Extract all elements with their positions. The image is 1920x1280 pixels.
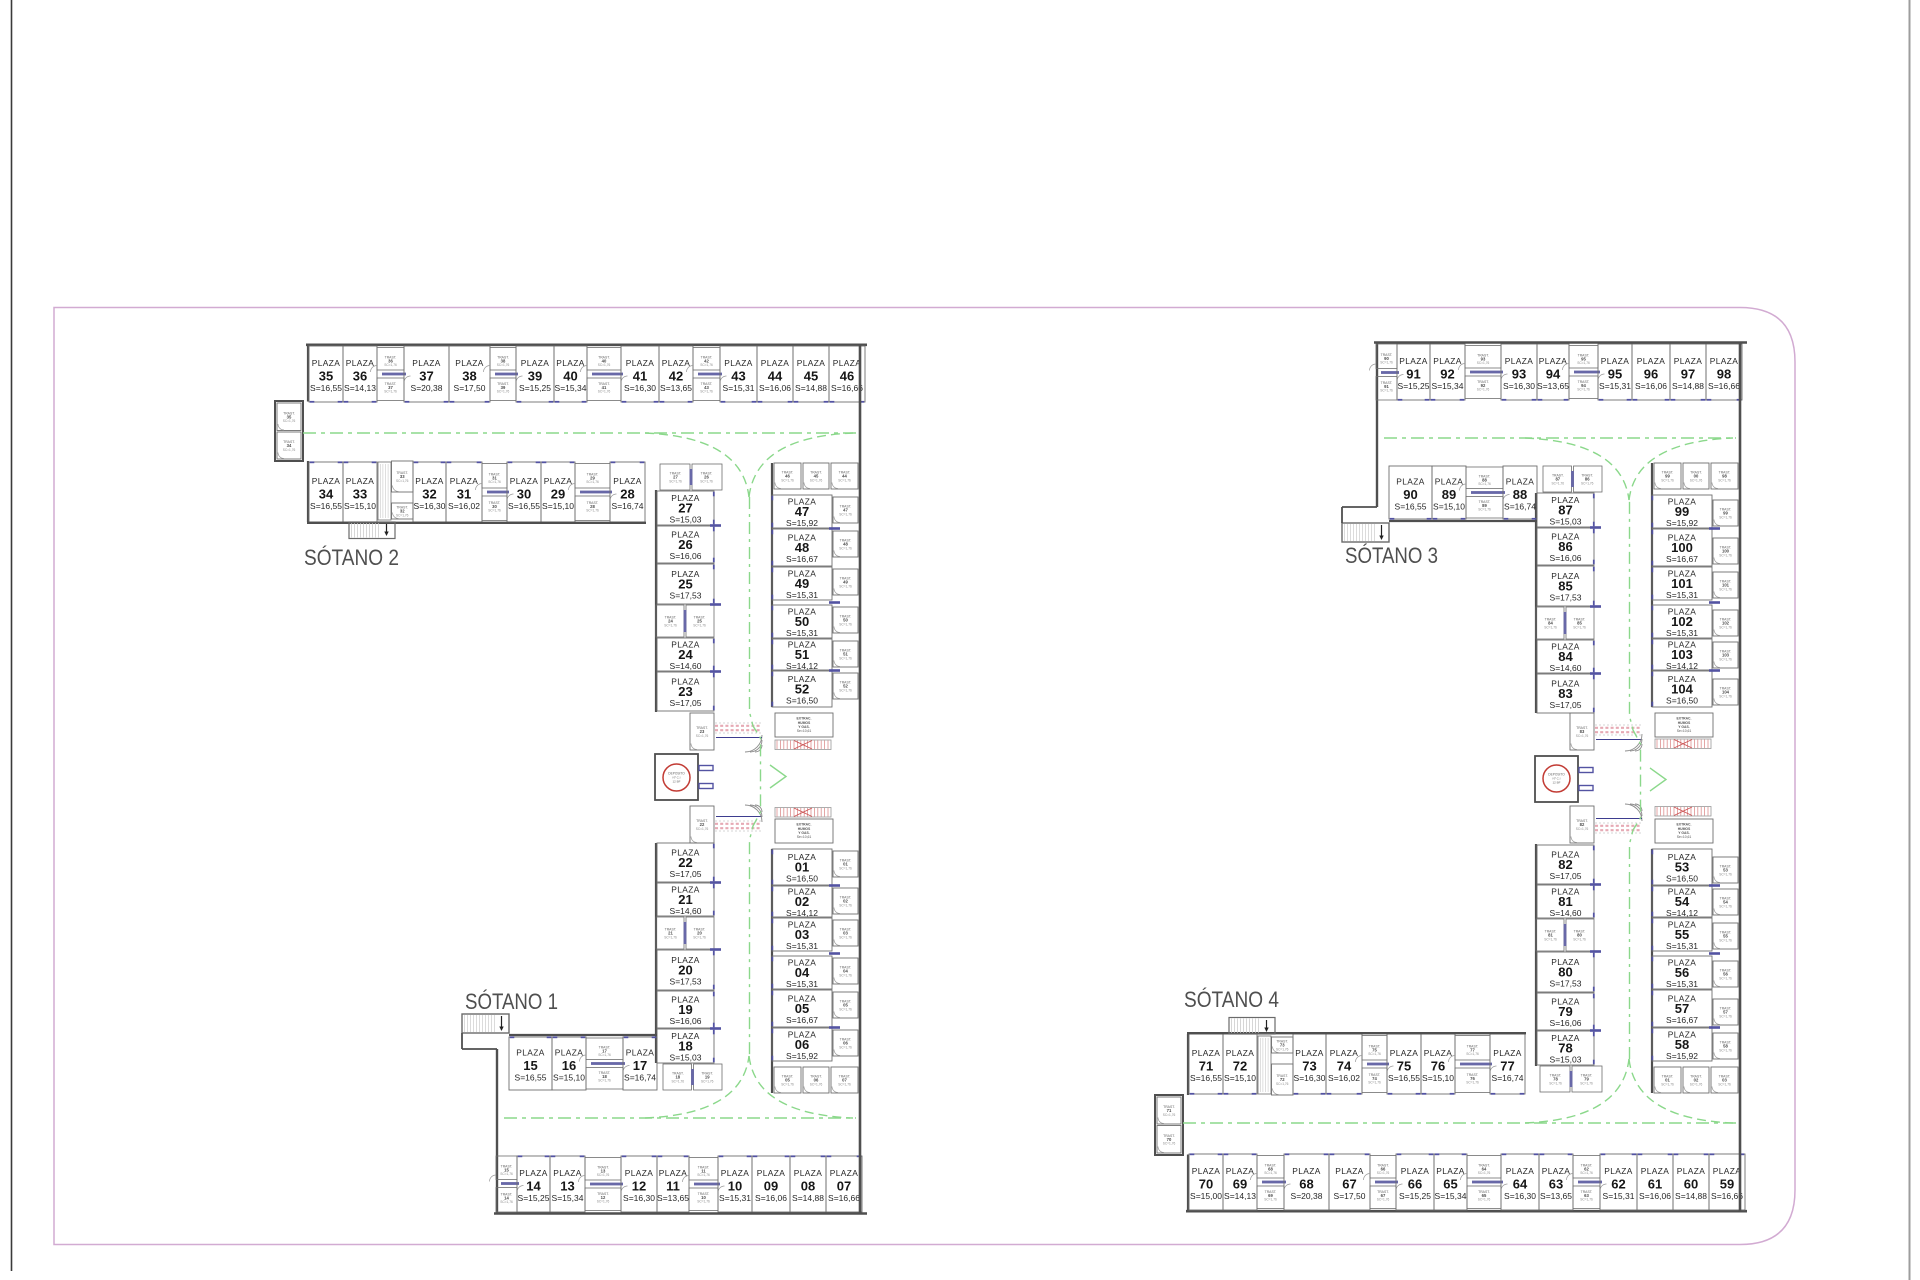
svg-text:90: 90	[1403, 487, 1417, 502]
svg-text:SC=1,76: SC=1,76	[1544, 625, 1557, 629]
svg-text:S=14,12: S=14,12	[786, 661, 818, 671]
svg-text:S=16,30: S=16,30	[623, 1193, 655, 1203]
svg-text:PLAZA: PLAZA	[1401, 1166, 1430, 1176]
svg-text:SC=1,76: SC=1,76	[1690, 478, 1703, 482]
svg-text:29: 29	[551, 487, 565, 502]
svg-text:S=15,31: S=15,31	[1666, 590, 1698, 600]
svg-text:PLAZA: PLAZA	[555, 1048, 584, 1058]
svg-text:80: 80	[1558, 965, 1572, 980]
svg-text:S=16,02: S=16,02	[448, 501, 480, 511]
svg-text:SC=1,76: SC=1,76	[1719, 872, 1732, 876]
svg-text:PLAZA: PLAZA	[510, 476, 539, 486]
svg-text:S=16,74: S=16,74	[612, 501, 644, 511]
svg-text:S=15,34: S=15,34	[1435, 1191, 1467, 1201]
svg-text:40: 40	[563, 369, 577, 384]
svg-text:08: 08	[801, 1179, 815, 1194]
svg-text:SC=1,76: SC=1,76	[1276, 1082, 1289, 1086]
svg-text:65: 65	[1443, 1177, 1457, 1192]
svg-text:SC=1,76: SC=1,76	[1719, 587, 1732, 591]
svg-text:S=15,31: S=15,31	[1666, 979, 1698, 989]
svg-text:57: 57	[1675, 1001, 1689, 1016]
svg-text:02: 02	[795, 894, 809, 909]
svg-text:SÓTANO 1: SÓTANO 1	[465, 989, 558, 1014]
svg-text:76: 76	[1431, 1059, 1445, 1074]
svg-text:SC=1,76: SC=1,76	[839, 935, 852, 939]
svg-text:PLAZA: PLAZA	[626, 358, 655, 368]
svg-text:SC=1,76: SC=1,76	[500, 1200, 513, 1204]
svg-text:SC=1,76: SC=1,76	[672, 1079, 685, 1083]
svg-text:SC=1,76: SC=1,76	[1580, 1081, 1593, 1085]
svg-text:SC=1,76: SC=1,76	[1577, 388, 1590, 392]
svg-text:S=16,50: S=16,50	[786, 696, 818, 706]
svg-text:01: 01	[795, 860, 809, 875]
svg-text:SC=1,76: SC=1,76	[1368, 1081, 1381, 1085]
svg-text:S=16,66: S=16,66	[1711, 1191, 1743, 1201]
svg-text:S=16,67: S=16,67	[786, 554, 818, 564]
svg-text:SC=1,76: SC=1,76	[693, 935, 706, 939]
svg-text:SC=1,76: SC=1,76	[1264, 1171, 1277, 1175]
svg-text:PLAZA: PLAZA	[346, 476, 375, 486]
svg-text:PLAZA: PLAZA	[659, 1168, 688, 1178]
svg-text:S=15,25: S=15,25	[519, 383, 551, 393]
svg-text:PLAZA: PLAZA	[1542, 1166, 1571, 1176]
svg-text:SÓTANO 3: SÓTANO 3	[1345, 543, 1438, 568]
svg-text:SC=1,76: SC=1,76	[810, 1082, 823, 1086]
svg-text:S=16,06: S=16,06	[670, 551, 702, 561]
svg-text:SC=1,76: SC=1,76	[597, 1173, 610, 1177]
svg-text:PLAZA: PLAZA	[553, 1168, 582, 1178]
svg-text:60: 60	[1684, 1177, 1698, 1192]
svg-text:S=15,03: S=15,03	[1550, 517, 1582, 527]
svg-text:SC=1,76: SC=1,76	[1478, 1171, 1491, 1175]
svg-text:S=13,65: S=13,65	[657, 1193, 689, 1203]
svg-text:91: 91	[1406, 367, 1420, 382]
svg-text:S=16,30: S=16,30	[1504, 1191, 1536, 1201]
svg-text:S=14,12: S=14,12	[1666, 908, 1698, 918]
svg-text:PLAZA: PLAZA	[626, 1048, 655, 1058]
svg-text:S=20,38: S=20,38	[1291, 1191, 1323, 1201]
svg-text:SC=1,76: SC=1,76	[1576, 827, 1589, 831]
svg-text:S=16,55: S=16,55	[310, 383, 342, 393]
svg-text:PLAZA: PLAZA	[450, 476, 479, 486]
svg-text:03: 03	[795, 927, 809, 942]
svg-text:S=16,74: S=16,74	[1504, 502, 1536, 512]
svg-text:SC=1,76: SC=1,76	[283, 448, 296, 452]
svg-text:S=17,05: S=17,05	[1550, 871, 1582, 881]
svg-text:SC=1,76: SC=1,76	[697, 1200, 710, 1204]
svg-text:63: 63	[1549, 1177, 1563, 1192]
svg-text:S=14,60: S=14,60	[1550, 663, 1582, 673]
svg-text:S=16,50: S=16,50	[1666, 874, 1698, 884]
svg-text:S=17,53: S=17,53	[1550, 979, 1582, 989]
svg-text:S=17,05: S=17,05	[670, 698, 702, 708]
svg-text:S=15,92: S=15,92	[786, 1051, 818, 1061]
svg-text:PLAZA: PLAZA	[1710, 356, 1739, 366]
svg-text:S=15,31: S=15,31	[1603, 1191, 1635, 1201]
svg-text:PLAZA: PLAZA	[761, 358, 790, 368]
svg-text:PLAZA: PLAZA	[721, 1168, 750, 1178]
svg-text:48: 48	[795, 540, 809, 555]
svg-text:19: 19	[678, 1002, 692, 1017]
svg-text:04: 04	[795, 965, 810, 980]
svg-text:37: 37	[419, 369, 433, 384]
svg-text:PLAZA: PLAZA	[794, 1168, 823, 1178]
svg-text:95: 95	[1608, 367, 1622, 382]
svg-text:SC=1,76: SC=1,76	[697, 1173, 710, 1177]
svg-text:SC=1,76: SC=1,76	[1718, 478, 1731, 482]
svg-text:S=15,03: S=15,03	[1550, 1055, 1582, 1065]
svg-text:PLAZA: PLAZA	[1436, 1166, 1465, 1176]
svg-text:S=15,10: S=15,10	[542, 501, 574, 511]
svg-text:PLAZA: PLAZA	[1674, 356, 1703, 366]
svg-text:42: 42	[669, 369, 683, 384]
svg-text:99: 99	[1675, 504, 1689, 519]
svg-text:14: 14	[526, 1179, 541, 1194]
svg-text:S=13,65: S=13,65	[660, 383, 692, 393]
svg-text:PLAZA: PLAZA	[1506, 1166, 1535, 1176]
svg-text:12 BF: 12 BF	[1552, 781, 1560, 785]
svg-text:43: 43	[731, 369, 745, 384]
svg-text:52: 52	[795, 682, 809, 697]
svg-text:S=14,88: S=14,88	[792, 1193, 824, 1203]
svg-text:56: 56	[1675, 965, 1689, 980]
svg-text:25: 25	[678, 577, 692, 592]
svg-text:SC=1,76: SC=1,76	[781, 1082, 794, 1086]
svg-text:PLAZA: PLAZA	[1226, 1166, 1255, 1176]
svg-text:S=16,67: S=16,67	[786, 1015, 818, 1025]
svg-text:66: 66	[1408, 1177, 1422, 1192]
svg-text:SC=1,76: SC=1,76	[1478, 1198, 1491, 1202]
svg-text:81: 81	[1558, 894, 1572, 909]
svg-text:12 BF: 12 BF	[672, 780, 680, 784]
svg-text:S=16,55: S=16,55	[1395, 502, 1427, 512]
svg-text:S=15,31: S=15,31	[786, 941, 818, 951]
svg-text:SC=1,76: SC=1,76	[664, 623, 677, 627]
svg-text:13: 13	[560, 1179, 574, 1194]
svg-text:S=15,25: S=15,25	[1398, 381, 1430, 391]
svg-text:28: 28	[620, 487, 634, 502]
svg-text:PLAZA: PLAZA	[346, 358, 375, 368]
svg-text:62: 62	[1611, 1177, 1625, 1192]
svg-text:18: 18	[678, 1039, 692, 1054]
svg-text:PLAZA: PLAZA	[312, 358, 341, 368]
svg-text:S=16,67: S=16,67	[1666, 554, 1698, 564]
svg-text:38: 38	[462, 369, 476, 384]
svg-text:PLAZA: PLAZA	[1435, 477, 1464, 487]
svg-text:PLAZA: PLAZA	[625, 1168, 654, 1178]
svg-text:SC=1,76: SC=1,76	[1466, 1052, 1479, 1056]
svg-text:SÓTANO 4: SÓTANO 4	[1184, 987, 1279, 1012]
svg-text:SC=1,76: SC=1,76	[1581, 481, 1594, 485]
svg-text:89: 89	[1442, 487, 1456, 502]
svg-text:SC=1,76: SC=1,76	[1719, 553, 1732, 557]
svg-text:S=16,50: S=16,50	[1666, 696, 1698, 706]
svg-text:SC=1,76: SC=1,76	[1478, 508, 1491, 512]
svg-text:PLAZA: PLAZA	[1330, 1048, 1359, 1058]
svg-text:SC=1,76: SC=1,76	[384, 363, 397, 367]
svg-text:S=14,12: S=14,12	[1666, 661, 1698, 671]
svg-text:SC=1,76: SC=1,76	[1276, 1047, 1289, 1051]
svg-text:PLAZA: PLAZA	[1295, 1048, 1324, 1058]
svg-text:SC=1,76: SC=1,76	[598, 1079, 611, 1083]
svg-text:S=16,55: S=16,55	[1190, 1073, 1222, 1083]
svg-text:S=16,66: S=16,66	[831, 383, 863, 393]
svg-text:S=15,92: S=15,92	[786, 518, 818, 528]
svg-text:S=15,31: S=15,31	[1599, 381, 1631, 391]
svg-text:20: 20	[678, 963, 692, 978]
svg-text:SC=1,76: SC=1,76	[839, 546, 852, 550]
svg-text:S=14,88: S=14,88	[1672, 381, 1704, 391]
svg-text:S=14,60: S=14,60	[670, 661, 702, 671]
svg-text:S=16,30: S=16,30	[414, 501, 446, 511]
svg-text:SC=1,76: SC=1,76	[839, 1045, 852, 1049]
svg-text:SC=1,76: SC=1,76	[1573, 937, 1586, 941]
svg-text:12: 12	[632, 1179, 646, 1194]
svg-text:86: 86	[1558, 539, 1572, 554]
svg-text:PLAZA: PLAZA	[1641, 1166, 1670, 1176]
svg-text:PLAZA: PLAZA	[757, 1168, 786, 1178]
svg-text:S=15,10: S=15,10	[1224, 1073, 1256, 1083]
svg-text:70: 70	[1199, 1177, 1213, 1192]
svg-text:47: 47	[795, 504, 809, 519]
svg-text:SC=1,76: SC=1,76	[1719, 976, 1732, 980]
svg-text:S=17,53: S=17,53	[670, 591, 702, 601]
svg-text:SC=1,76: SC=1,76	[1380, 389, 1393, 393]
svg-text:SC=1,76: SC=1,76	[1580, 1171, 1593, 1175]
svg-text:PLAZA: PLAZA	[544, 476, 573, 486]
svg-text:SC=1,76: SC=1,76	[700, 479, 713, 483]
svg-text:59: 59	[1720, 1177, 1734, 1192]
svg-text:PLAZA: PLAZA	[797, 358, 826, 368]
svg-text:SC=1,76: SC=1,76	[1163, 1113, 1176, 1117]
svg-text:79: 79	[1558, 1004, 1572, 1019]
svg-text:S=15,31: S=15,31	[1666, 628, 1698, 638]
svg-text:Se=10,61: Se=10,61	[797, 835, 812, 839]
svg-text:S=14,13: S=14,13	[344, 383, 376, 393]
svg-text:SC=1,76: SC=1,76	[488, 509, 501, 513]
svg-text:06: 06	[795, 1037, 809, 1052]
svg-text:S=15,31: S=15,31	[723, 383, 755, 393]
svg-text:75: 75	[1397, 1059, 1411, 1074]
svg-text:SC=1,76: SC=1,76	[283, 419, 296, 423]
svg-text:SC=1,76: SC=1,76	[396, 513, 409, 517]
svg-text:PLAZA: PLAZA	[516, 1048, 545, 1058]
svg-text:PLAZA: PLAZA	[1192, 1166, 1221, 1176]
svg-text:PLAZA: PLAZA	[412, 358, 441, 368]
svg-text:61: 61	[1648, 1177, 1662, 1192]
svg-text:SC=1,76: SC=1,76	[1719, 938, 1732, 942]
svg-text:104: 104	[1671, 682, 1693, 697]
svg-text:PLAZA: PLAZA	[521, 358, 550, 368]
svg-text:SC=1,76: SC=1,76	[1577, 361, 1590, 365]
svg-text:103: 103	[1671, 647, 1693, 662]
svg-text:SC=1,76: SC=1,76	[839, 973, 852, 977]
svg-text:S=13,65: S=13,65	[1537, 381, 1569, 391]
svg-text:69: 69	[1233, 1177, 1247, 1192]
svg-text:S=16,06: S=16,06	[755, 1193, 787, 1203]
svg-text:53: 53	[1675, 860, 1689, 875]
svg-text:S=16,06: S=16,06	[670, 1016, 702, 1026]
svg-text:SC=1,76: SC=1,76	[1549, 1081, 1562, 1085]
svg-text:S=16,74: S=16,74	[624, 1073, 656, 1083]
svg-text:S=14,60: S=14,60	[670, 906, 702, 916]
svg-text:SC=1,76: SC=1,76	[1661, 1082, 1674, 1086]
svg-text:S=16,06: S=16,06	[1639, 1191, 1671, 1201]
svg-text:35: 35	[319, 369, 333, 384]
svg-text:51: 51	[795, 647, 809, 662]
svg-text:SC=1,76: SC=1,76	[810, 478, 823, 482]
svg-text:SÓTANO 2: SÓTANO 2	[304, 545, 399, 570]
svg-text:78: 78	[1558, 1041, 1572, 1056]
svg-text:SC=1,76: SC=1,76	[1377, 1198, 1390, 1202]
svg-text:PLAZA: PLAZA	[1390, 1048, 1419, 1058]
svg-text:68: 68	[1299, 1177, 1313, 1192]
svg-text:PLAZA: PLAZA	[613, 476, 642, 486]
svg-text:SC=1,76: SC=1,76	[839, 512, 852, 516]
svg-text:98: 98	[1717, 367, 1731, 382]
svg-text:54: 54	[1675, 894, 1690, 909]
svg-text:SC=1,76: SC=1,76	[1264, 1198, 1277, 1202]
svg-text:SC=1,76: SC=1,76	[1552, 481, 1565, 485]
svg-text:94: 94	[1546, 367, 1561, 382]
svg-text:S=15,25: S=15,25	[518, 1193, 550, 1203]
svg-text:S=13,65: S=13,65	[1540, 1191, 1572, 1201]
svg-text:PLAZA: PLAZA	[1399, 356, 1428, 366]
svg-text:SC=1,76: SC=1,76	[598, 1053, 611, 1057]
svg-text:S=15,31: S=15,31	[719, 1193, 751, 1203]
svg-text:S=16,55: S=16,55	[1388, 1073, 1420, 1083]
svg-text:S=14,88: S=14,88	[795, 383, 827, 393]
svg-text:PLAZA: PLAZA	[1506, 477, 1535, 487]
svg-text:S=17,53: S=17,53	[670, 977, 702, 987]
svg-text:PLAZA: PLAZA	[724, 358, 753, 368]
svg-text:SC=1,76: SC=1,76	[839, 622, 852, 626]
svg-text:S=15,10: S=15,10	[344, 501, 376, 511]
svg-text:11: 11	[666, 1179, 680, 1194]
svg-text:PLAZA: PLAZA	[830, 1168, 859, 1178]
svg-text:S=17,50: S=17,50	[1334, 1191, 1366, 1201]
svg-text:PLAZA: PLAZA	[455, 358, 484, 368]
svg-text:SC=1,76: SC=1,76	[1466, 1081, 1479, 1085]
svg-text:PLAZA: PLAZA	[1226, 1048, 1255, 1058]
svg-text:SC=1,76: SC=1,76	[1477, 361, 1490, 365]
svg-text:SC=1,76: SC=1,76	[488, 480, 501, 484]
svg-text:SC=1,76: SC=1,76	[1719, 515, 1732, 519]
svg-text:S=14,60: S=14,60	[1550, 908, 1582, 918]
svg-text:17: 17	[633, 1058, 647, 1073]
svg-text:SC=1,76: SC=1,76	[1719, 657, 1732, 661]
svg-text:S=16,06: S=16,06	[1635, 381, 1667, 391]
svg-text:PLAZA: PLAZA	[1539, 356, 1568, 366]
svg-text:S=15,34: S=15,34	[552, 1193, 584, 1203]
svg-text:PLAZA: PLAZA	[1433, 356, 1462, 366]
svg-text:SC=1,76: SC=1,76	[497, 390, 510, 394]
svg-text:SC=1,76: SC=1,76	[700, 390, 713, 394]
svg-text:PLAZA: PLAZA	[519, 1168, 548, 1178]
svg-text:09: 09	[764, 1179, 778, 1194]
svg-text:33: 33	[353, 487, 367, 502]
svg-text:S=15,92: S=15,92	[1666, 518, 1698, 528]
svg-text:S=15,34: S=15,34	[1432, 381, 1464, 391]
svg-text:21: 21	[678, 892, 692, 907]
svg-text:S=16,74: S=16,74	[1492, 1073, 1524, 1083]
svg-text:71: 71	[1199, 1059, 1213, 1074]
svg-text:S=16,67: S=16,67	[1666, 1015, 1698, 1025]
svg-text:S=15,31: S=15,31	[786, 628, 818, 638]
svg-text:PLAZA: PLAZA	[1505, 356, 1534, 366]
svg-text:PLAZA: PLAZA	[1424, 1048, 1453, 1058]
svg-text:PLAZA: PLAZA	[1292, 1166, 1321, 1176]
svg-text:87: 87	[1558, 503, 1572, 518]
svg-text:85: 85	[1558, 579, 1572, 594]
svg-text:SC=1,76: SC=1,76	[1718, 1082, 1731, 1086]
svg-text:S=16,66: S=16,66	[828, 1193, 860, 1203]
svg-text:S=15,10: S=15,10	[1422, 1073, 1454, 1083]
svg-text:S=17,05: S=17,05	[1550, 700, 1582, 710]
svg-text:SC=1,76: SC=1,76	[838, 1082, 851, 1086]
svg-text:SC=1,76: SC=1,76	[1368, 1052, 1381, 1056]
svg-text:SC=1,76: SC=1,76	[781, 478, 794, 482]
svg-text:72: 72	[1233, 1059, 1247, 1074]
svg-text:SC=1,76: SC=1,76	[839, 688, 852, 692]
svg-text:SC=1,76: SC=1,76	[1661, 478, 1674, 482]
svg-text:SC=1,76: SC=1,76	[839, 903, 852, 907]
svg-text:S=16,55: S=16,55	[310, 501, 342, 511]
svg-text:S=16,30: S=16,30	[1503, 381, 1535, 391]
svg-text:SC=1,76: SC=1,76	[497, 363, 510, 367]
svg-text:Se=10,61: Se=10,61	[1677, 729, 1692, 733]
svg-text:SC=1,76: SC=1,76	[839, 656, 852, 660]
svg-text:82: 82	[1558, 857, 1572, 872]
svg-text:58: 58	[1675, 1037, 1689, 1052]
svg-text:SC=1,76: SC=1,76	[1544, 937, 1557, 941]
svg-text:S=16,02: S=16,02	[1328, 1073, 1360, 1083]
svg-text:36: 36	[353, 369, 367, 384]
svg-text:S=15,31: S=15,31	[786, 979, 818, 989]
svg-text:S=16,06: S=16,06	[1550, 553, 1582, 563]
svg-text:PLAZA: PLAZA	[312, 476, 341, 486]
svg-text:30: 30	[517, 487, 531, 502]
svg-text:PLAZA: PLAZA	[1335, 1166, 1364, 1176]
svg-text:PLAZA: PLAZA	[1493, 1048, 1522, 1058]
svg-text:27: 27	[678, 501, 692, 516]
svg-text:S=15,31: S=15,31	[1666, 941, 1698, 951]
svg-text:15: 15	[523, 1058, 537, 1073]
svg-text:S=14,88: S=14,88	[1675, 1191, 1707, 1201]
svg-text:96: 96	[1644, 367, 1658, 382]
svg-text:SC=1,76: SC=1,76	[598, 363, 611, 367]
svg-text:S=16,55: S=16,55	[508, 501, 540, 511]
svg-text:S=16,66: S=16,66	[1708, 381, 1740, 391]
svg-text:SC=1,76: SC=1,76	[1163, 1142, 1176, 1146]
svg-text:S=15,92: S=15,92	[1666, 1051, 1698, 1061]
svg-text:SC=1,76: SC=1,76	[1719, 1014, 1732, 1018]
svg-text:SC=1,76: SC=1,76	[700, 363, 713, 367]
svg-text:SC=1,76: SC=1,76	[396, 479, 409, 483]
svg-text:SC=1,76: SC=1,76	[598, 390, 611, 394]
svg-text:SC=1,76: SC=1,76	[696, 827, 709, 831]
svg-text:39: 39	[528, 369, 542, 384]
svg-text:PLAZA: PLAZA	[1601, 356, 1630, 366]
svg-text:49: 49	[795, 576, 809, 591]
svg-text:92: 92	[1440, 367, 1454, 382]
svg-text:05: 05	[795, 1001, 809, 1016]
svg-text:S=16,30: S=16,30	[1294, 1073, 1326, 1083]
svg-text:101: 101	[1671, 576, 1693, 591]
svg-text:45: 45	[804, 369, 818, 384]
svg-text:S=15,03: S=15,03	[670, 1053, 702, 1063]
svg-text:SC=1,76: SC=1,76	[1477, 388, 1490, 392]
